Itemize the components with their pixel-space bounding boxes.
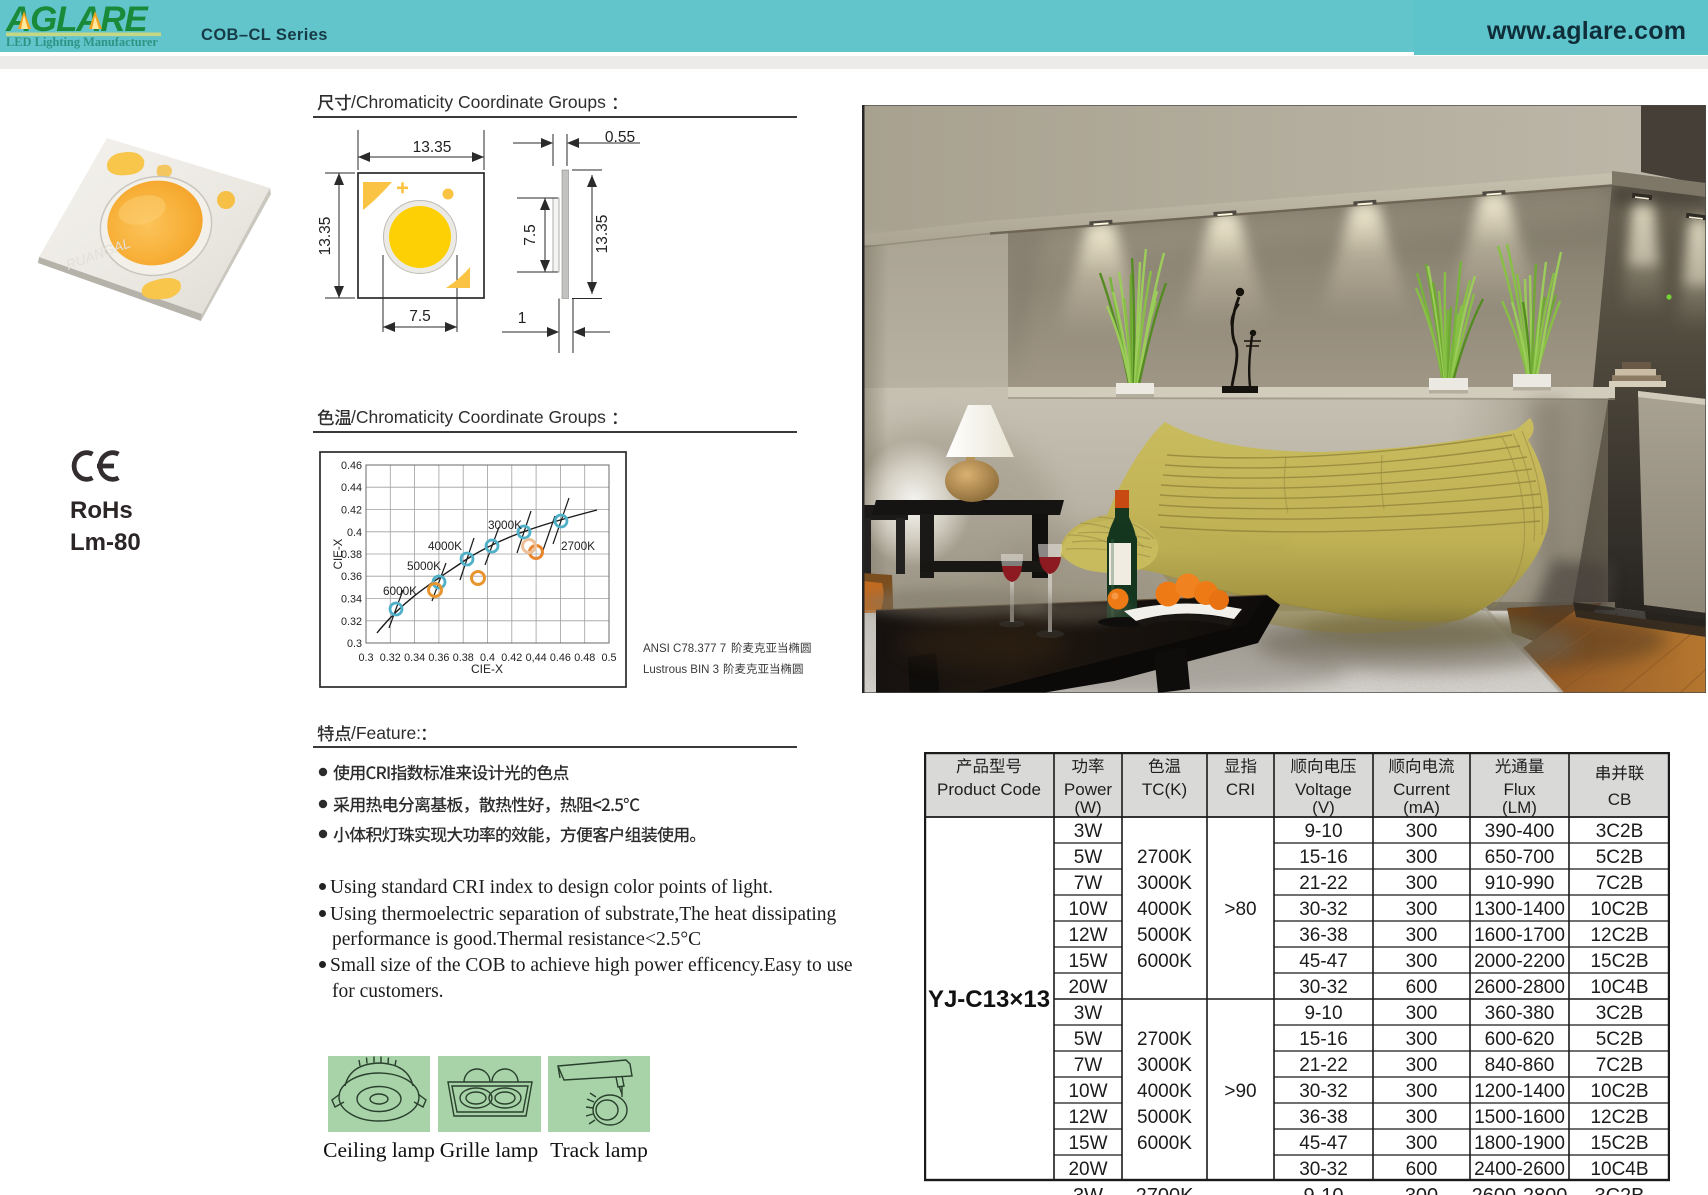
svg-text:4000K: 4000K xyxy=(1137,899,1192,920)
svg-text:(V): (V) xyxy=(1312,798,1335,817)
svg-text:5000K: 5000K xyxy=(1137,925,1192,946)
svg-text:Power: Power xyxy=(1064,780,1113,799)
svg-text:36-38: 36-38 xyxy=(1299,1107,1348,1128)
svg-text:10C4B: 10C4B xyxy=(1590,977,1648,998)
svg-text:Current: Current xyxy=(1393,780,1450,799)
svg-text:300: 300 xyxy=(1406,925,1438,946)
svg-text:600-620: 600-620 xyxy=(1485,1029,1555,1050)
svg-text:CRI: CRI xyxy=(1226,780,1255,799)
svg-text:15C2B: 15C2B xyxy=(1590,951,1648,972)
svg-text:300: 300 xyxy=(1406,1081,1438,1102)
svg-text:0.46: 0.46 xyxy=(341,460,362,472)
svg-text:6000K: 6000K xyxy=(1137,951,1192,972)
svg-text:300: 300 xyxy=(1406,847,1438,868)
svg-text:9-10: 9-10 xyxy=(1303,1185,1343,1195)
svg-text:360-380: 360-380 xyxy=(1485,1003,1555,1024)
svg-text:3W: 3W xyxy=(1074,821,1103,842)
svg-text:840-860: 840-860 xyxy=(1485,1055,1555,1076)
svg-text:7.5: 7.5 xyxy=(522,224,539,246)
svg-text:0.42: 0.42 xyxy=(501,652,522,664)
svg-text:3C2B: 3C2B xyxy=(1596,1003,1644,1024)
svg-text:(W): (W) xyxy=(1074,798,1101,817)
svg-text:300: 300 xyxy=(1406,1107,1438,1128)
svg-text:4000K: 4000K xyxy=(1137,1081,1192,1102)
svg-text:10C2B: 10C2B xyxy=(1590,1081,1648,1102)
svg-text:15C2B: 15C2B xyxy=(1590,1133,1648,1154)
svg-text:21-22: 21-22 xyxy=(1299,1055,1348,1076)
svg-text:4000K: 4000K xyxy=(428,539,462,553)
svg-text:7W: 7W xyxy=(1074,873,1103,894)
svg-text:0.44: 0.44 xyxy=(341,482,362,494)
svg-text:21-22: 21-22 xyxy=(1299,873,1348,894)
svg-text:2700K: 2700K xyxy=(1137,847,1192,868)
svg-text:0.34: 0.34 xyxy=(341,594,362,606)
svg-text:LED Lighting Manufacturer: LED Lighting Manufacturer xyxy=(6,35,158,49)
svg-text:5C2B: 5C2B xyxy=(1596,1029,1644,1050)
svg-text:3C2B: 3C2B xyxy=(1596,821,1644,842)
svg-text:0.3: 0.3 xyxy=(358,652,373,664)
svg-text:12C2B: 12C2B xyxy=(1590,925,1648,946)
svg-text:CIE-X: CIE-X xyxy=(333,538,345,569)
svg-text:CIE-X: CIE-X xyxy=(471,662,503,676)
svg-text:0.3: 0.3 xyxy=(347,638,362,650)
svg-text:300: 300 xyxy=(1406,1055,1438,1076)
svg-text:12W: 12W xyxy=(1068,1107,1107,1128)
svg-text:1300-1400: 1300-1400 xyxy=(1474,899,1565,920)
svg-text:5W: 5W xyxy=(1074,1029,1103,1050)
svg-text:5W: 5W xyxy=(1074,847,1103,868)
svg-text:13.35: 13.35 xyxy=(317,217,334,256)
svg-text:(mA): (mA) xyxy=(1403,798,1440,817)
svg-text:0.48: 0.48 xyxy=(574,652,595,664)
svg-text:10C4B: 10C4B xyxy=(1590,1159,1648,1180)
svg-text:20W: 20W xyxy=(1068,977,1107,998)
svg-text:2400-2600: 2400-2600 xyxy=(1474,1159,1565,1180)
svg-text:300: 300 xyxy=(1406,821,1438,842)
svg-text:0.32: 0.32 xyxy=(380,652,401,664)
svg-text:0.5: 0.5 xyxy=(601,652,616,664)
svg-text:300: 300 xyxy=(1406,1003,1438,1024)
svg-text:0.36: 0.36 xyxy=(341,571,362,583)
svg-text:6000K: 6000K xyxy=(1137,1133,1192,1154)
svg-text:10C2B: 10C2B xyxy=(1590,899,1648,920)
svg-text:9-10: 9-10 xyxy=(1304,1003,1342,1024)
svg-text:5000K: 5000K xyxy=(1137,1107,1192,1128)
svg-text:0.36: 0.36 xyxy=(428,652,449,664)
svg-text:>80: >80 xyxy=(1224,899,1256,920)
svg-text:15-16: 15-16 xyxy=(1299,1029,1348,1050)
svg-text:30-32: 30-32 xyxy=(1299,1159,1348,1180)
svg-text:15W: 15W xyxy=(1068,1133,1107,1154)
svg-text:45-47: 45-47 xyxy=(1299,951,1348,972)
svg-text:300: 300 xyxy=(1406,899,1438,920)
svg-text:2000-2200: 2000-2200 xyxy=(1474,951,1565,972)
svg-text:7C2B: 7C2B xyxy=(1596,873,1644,894)
svg-text:Voltage: Voltage xyxy=(1295,780,1352,799)
svg-text:3000K: 3000K xyxy=(488,518,522,532)
svg-text:Product Code: Product Code xyxy=(937,780,1041,799)
svg-text:30-32: 30-32 xyxy=(1299,899,1348,920)
svg-text:12W: 12W xyxy=(1068,925,1107,946)
svg-text:30-32: 30-32 xyxy=(1299,1081,1348,1102)
svg-text:10W: 10W xyxy=(1068,899,1107,920)
svg-text:300: 300 xyxy=(1405,1185,1438,1195)
svg-text:10W: 10W xyxy=(1068,1081,1107,1102)
svg-text:20W: 20W xyxy=(1068,1159,1107,1180)
svg-text:36-38: 36-38 xyxy=(1299,925,1348,946)
svg-text:2700K: 2700K xyxy=(1136,1185,1194,1195)
svg-text:1600-1700: 1600-1700 xyxy=(1474,925,1565,946)
svg-text:300: 300 xyxy=(1406,951,1438,972)
svg-text:0.46: 0.46 xyxy=(550,652,571,664)
svg-text:300: 300 xyxy=(1406,1133,1438,1154)
svg-text:910-990: 910-990 xyxy=(1485,873,1555,894)
svg-text:300: 300 xyxy=(1406,873,1438,894)
svg-text:2600-2800: 2600-2800 xyxy=(1472,1185,1568,1195)
svg-text:(LM): (LM) xyxy=(1502,798,1537,817)
svg-text:300: 300 xyxy=(1406,1029,1438,1050)
svg-text:2700K: 2700K xyxy=(561,539,595,553)
svg-text:390-400: 390-400 xyxy=(1485,821,1555,842)
svg-text:0.32: 0.32 xyxy=(341,616,362,628)
svg-text:600: 600 xyxy=(1406,1159,1438,1180)
svg-text:6000K: 6000K xyxy=(383,584,417,598)
svg-text:3C2B: 3C2B xyxy=(1594,1185,1644,1195)
svg-text:30-32: 30-32 xyxy=(1299,977,1348,998)
svg-text:YJ-C13×13: YJ-C13×13 xyxy=(928,986,1050,1013)
svg-text:2600-2800: 2600-2800 xyxy=(1474,977,1565,998)
svg-text:0.42: 0.42 xyxy=(341,505,362,517)
svg-text:7C2B: 7C2B xyxy=(1596,1055,1644,1076)
svg-text:7W: 7W xyxy=(1074,1055,1103,1076)
svg-text:>90: >90 xyxy=(1224,1081,1256,1102)
svg-text:1500-1600: 1500-1600 xyxy=(1474,1107,1565,1128)
svg-text:3W: 3W xyxy=(1074,1003,1103,1024)
svg-text:Flux: Flux xyxy=(1503,780,1536,799)
svg-text:9-10: 9-10 xyxy=(1304,821,1342,842)
svg-text:13.35: 13.35 xyxy=(594,215,611,254)
svg-text:1800-1900: 1800-1900 xyxy=(1474,1133,1565,1154)
svg-text:15W: 15W xyxy=(1068,951,1107,972)
svg-text:12C2B: 12C2B xyxy=(1590,1107,1648,1128)
svg-text:2700K: 2700K xyxy=(1137,1029,1192,1050)
svg-text:600: 600 xyxy=(1406,977,1438,998)
svg-text:1200-1400: 1200-1400 xyxy=(1474,1081,1565,1102)
svg-text:650-700: 650-700 xyxy=(1485,847,1555,868)
svg-text:3000K: 3000K xyxy=(1137,873,1192,894)
svg-text:7.5: 7.5 xyxy=(409,308,431,325)
svg-text:0.4: 0.4 xyxy=(347,527,362,539)
svg-text:0,44: 0,44 xyxy=(526,652,547,664)
svg-text:1: 1 xyxy=(518,310,527,327)
svg-text:15-16: 15-16 xyxy=(1299,847,1348,868)
svg-text:3W: 3W xyxy=(1073,1185,1103,1195)
svg-text:3000K: 3000K xyxy=(1137,1055,1192,1076)
svg-text:CB: CB xyxy=(1608,790,1632,809)
svg-text:45-47: 45-47 xyxy=(1299,1133,1348,1154)
svg-text:5C2B: 5C2B xyxy=(1596,847,1644,868)
svg-text:TC(K): TC(K) xyxy=(1142,780,1187,799)
svg-text:5000K: 5000K xyxy=(407,559,441,573)
svg-text:13.35: 13.35 xyxy=(413,139,452,156)
svg-text:0.34: 0.34 xyxy=(404,652,425,664)
